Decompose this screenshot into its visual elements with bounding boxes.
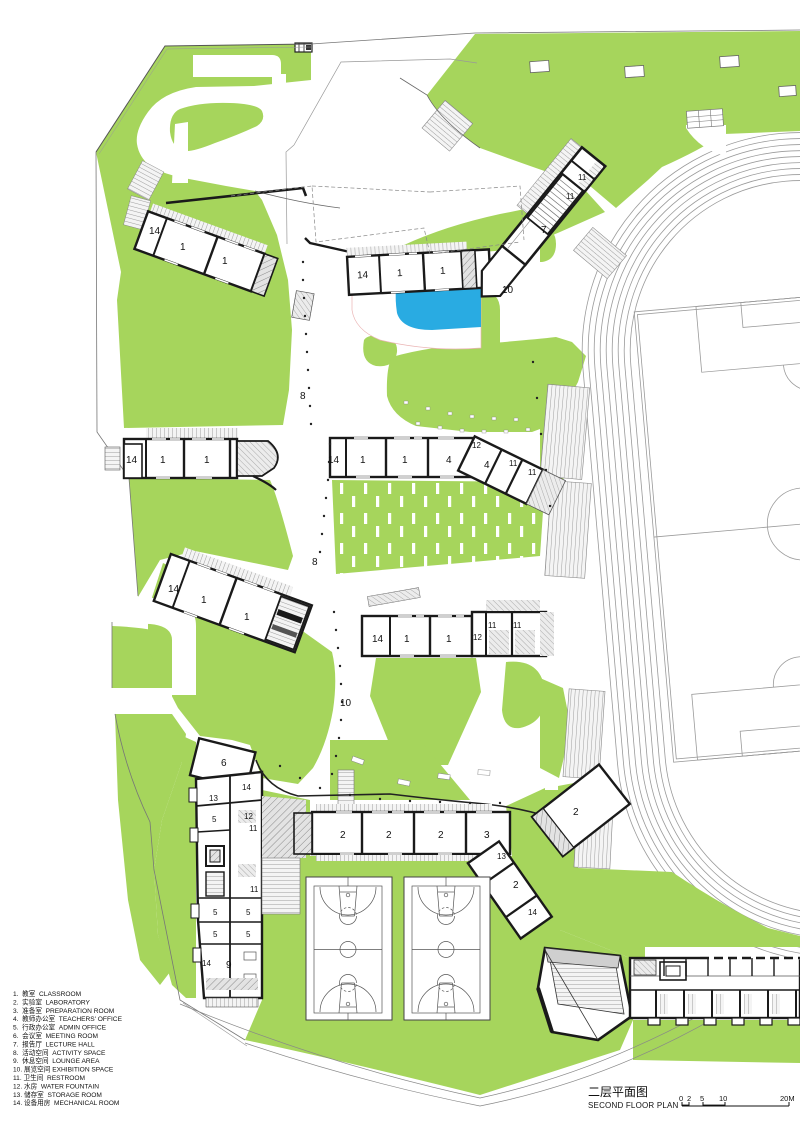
- svg-text:5: 5: [246, 930, 251, 939]
- svg-text:14: 14: [357, 270, 369, 282]
- svg-text:5: 5: [213, 930, 218, 939]
- svg-text:13: 13: [209, 794, 218, 803]
- svg-text:11: 11: [513, 621, 522, 630]
- svg-text:5: 5: [246, 908, 251, 917]
- svg-text:2: 2: [438, 830, 444, 841]
- svg-text:5. 行政办公室 ADMIN OFFICE: 5. 行政办公室 ADMIN OFFICE: [13, 1023, 107, 1032]
- svg-text:11: 11: [566, 192, 575, 201]
- svg-text:1: 1: [360, 455, 366, 466]
- svg-text:11: 11: [528, 468, 537, 477]
- svg-text:13. 储存室 STORAGE ROOM: 13. 储存室 STORAGE ROOM: [13, 1090, 102, 1099]
- svg-text:0: 0: [679, 1094, 683, 1103]
- svg-text:1: 1: [404, 634, 410, 645]
- svg-text:2: 2: [573, 807, 579, 818]
- svg-text:6: 6: [221, 758, 227, 769]
- svg-text:11: 11: [488, 621, 497, 630]
- svg-text:12: 12: [472, 441, 481, 450]
- svg-text:SECOND FLOOR PLAN: SECOND FLOOR PLAN: [588, 1101, 679, 1110]
- svg-text:8. 活动空间 ACTIVITY SPACE: 8. 活动空间 ACTIVITY SPACE: [13, 1048, 106, 1057]
- svg-text:14: 14: [372, 634, 384, 645]
- svg-text:10: 10: [502, 285, 514, 296]
- svg-text:1: 1: [440, 266, 447, 277]
- svg-text:4: 4: [484, 460, 490, 471]
- svg-text:14: 14: [242, 783, 251, 792]
- svg-text:1: 1: [222, 256, 228, 267]
- svg-text:9. 休息空间 LOUNGE AREA: 9. 休息空间 LOUNGE AREA: [13, 1056, 100, 1065]
- svg-text:2: 2: [340, 830, 346, 841]
- svg-text:1: 1: [160, 455, 166, 466]
- svg-text:1: 1: [402, 455, 408, 466]
- svg-text:14: 14: [528, 908, 537, 917]
- svg-text:7: 7: [541, 225, 547, 236]
- svg-text:5: 5: [700, 1094, 704, 1103]
- svg-text:11: 11: [249, 824, 258, 833]
- svg-text:6. 会议室 MEETING ROOM: 6. 会议室 MEETING ROOM: [13, 1031, 98, 1040]
- svg-text:3. 准备室 PREPARATION ROOM: 3. 准备室 PREPARATION ROOM: [13, 1006, 114, 1015]
- svg-text:9: 9: [226, 960, 232, 971]
- svg-text:1. 教室 CLASSROOM: 1. 教室 CLASSROOM: [13, 989, 81, 998]
- svg-text:11: 11: [509, 459, 518, 468]
- svg-text:2: 2: [513, 880, 519, 891]
- svg-text:4. 教师办公室 TEACHERS' OFFICE: 4. 教师办公室 TEACHERS' OFFICE: [13, 1014, 123, 1023]
- svg-text:10: 10: [340, 698, 352, 709]
- svg-text:13: 13: [497, 852, 506, 861]
- svg-text:1: 1: [446, 634, 452, 645]
- svg-text:10: 10: [719, 1094, 727, 1103]
- svg-text:11: 11: [578, 173, 587, 182]
- svg-text:5: 5: [212, 815, 217, 824]
- svg-text:20M: 20M: [780, 1094, 795, 1103]
- svg-text:1: 1: [201, 595, 207, 606]
- svg-text:12: 12: [473, 633, 482, 642]
- svg-text:7. 报告厅 LECTURE HALL: 7. 报告厅 LECTURE HALL: [13, 1039, 95, 1048]
- svg-text:14. 设备用房 MECHANICAL ROOM: 14. 设备用房 MECHANICAL ROOM: [13, 1098, 119, 1107]
- svg-text:14: 14: [202, 959, 211, 968]
- svg-text:3: 3: [484, 830, 490, 841]
- svg-text:14: 14: [149, 226, 161, 237]
- svg-text:11. 卫生间 RESTROOM: 11. 卫生间 RESTROOM: [13, 1073, 85, 1082]
- svg-text:14: 14: [168, 584, 180, 595]
- svg-text:1: 1: [397, 268, 404, 279]
- svg-text:5: 5: [213, 908, 218, 917]
- svg-text:1: 1: [244, 612, 250, 623]
- svg-text:1: 1: [204, 455, 210, 466]
- svg-text:2: 2: [386, 830, 392, 841]
- svg-text:1: 1: [180, 242, 186, 253]
- svg-text:12. 水房 WATER FOUNTAIN: 12. 水房 WATER FOUNTAIN: [13, 1081, 99, 1090]
- svg-text:2. 实验室 LABORATORY: 2. 实验室 LABORATORY: [13, 997, 91, 1006]
- svg-text:8: 8: [300, 391, 306, 402]
- svg-text:14: 14: [126, 455, 138, 466]
- svg-text:二层平面图: 二层平面图: [588, 1085, 648, 1099]
- svg-text:8: 8: [312, 557, 318, 568]
- svg-text:10. 展览空间 EXHIBITION SPACE: 10. 展览空间 EXHIBITION SPACE: [13, 1065, 114, 1074]
- svg-text:12: 12: [244, 812, 253, 821]
- svg-text:11: 11: [250, 885, 259, 894]
- svg-text:2: 2: [687, 1094, 691, 1103]
- svg-text:14: 14: [328, 455, 340, 466]
- svg-text:4: 4: [446, 455, 452, 466]
